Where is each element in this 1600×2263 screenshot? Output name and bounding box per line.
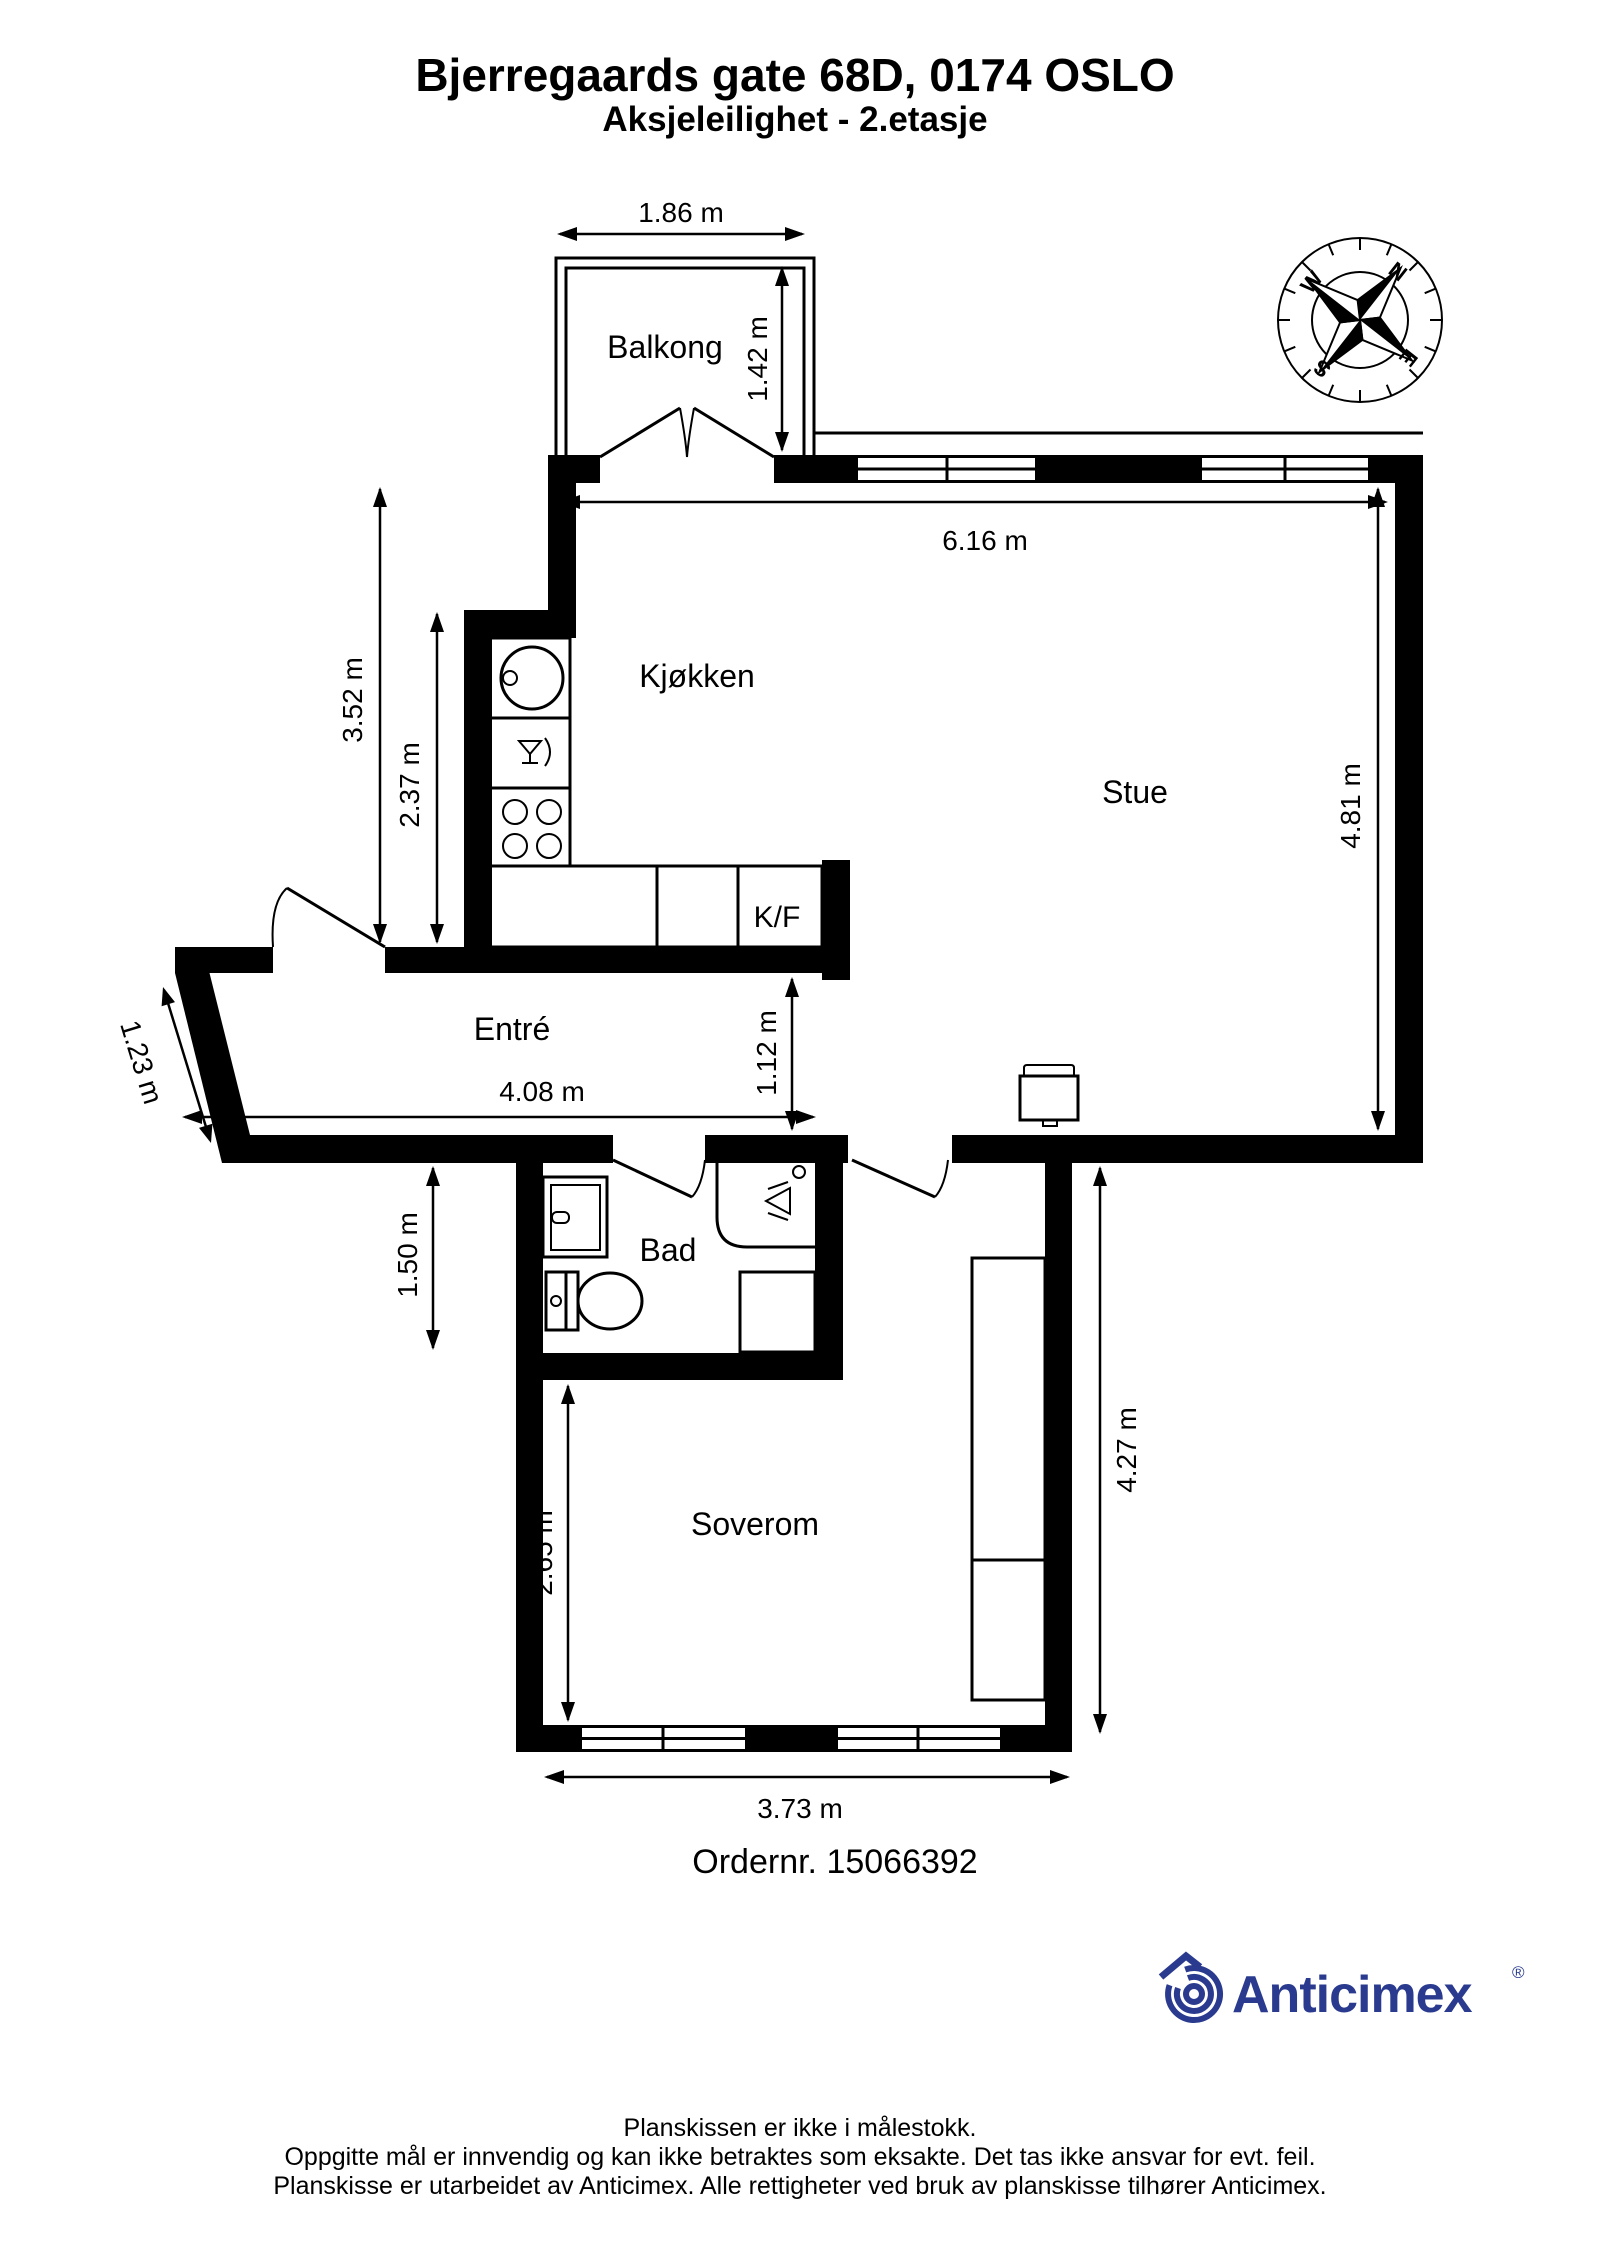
footer-line-3: Planskisse er utarbeidet av Anticimex. A… (273, 2172, 1326, 2200)
dim-label: 2.37 m (394, 742, 425, 828)
dim-right-wing-height: 4.27 m (1093, 1166, 1142, 1734)
header: Bjerregaards gate 68D, 0174 OSLO Aksjele… (415, 49, 1174, 139)
wardrobe (972, 1258, 1045, 1700)
soverom-window-1 (582, 1725, 745, 1752)
footer-disclaimer: Planskissen er ikke i målestokk. Oppgitt… (273, 2114, 1326, 2200)
order-number: Ordernr. 15066392 (692, 1843, 977, 1881)
dimensions: 1.86 m 1.42 m 6.16 m 3.52 m 2.37 m (114, 197, 1388, 1824)
soverom-door (852, 1160, 948, 1197)
dim-label: 4.08 m (499, 1076, 585, 1107)
floorplan-drawing: Bjerregaards gate 68D, 0174 OSLO Aksjele… (0, 0, 1600, 2263)
stue-right-wall (1395, 455, 1423, 1163)
stue-bottom-wall (952, 1135, 1423, 1163)
dim-bad-height: 1.50 m (392, 1166, 440, 1350)
dim-label: 3.52 m (337, 657, 368, 743)
room-label-stue: Stue (1102, 774, 1168, 810)
kitchen-left-wall (464, 610, 492, 973)
soverom-right-wall (1045, 1135, 1072, 1752)
bad-door (613, 1160, 705, 1197)
dim-passage: 1.12 m (751, 977, 799, 1131)
dim-label: 4.81 m (1335, 763, 1366, 849)
kf-stub-wall (822, 860, 850, 980)
page-title: Bjerregaards gate 68D, 0174 OSLO (415, 49, 1174, 101)
footer-line-1: Planskissen er ikke i målestokk. (624, 2114, 977, 2142)
balcony-door (600, 408, 774, 457)
anticimex-logo-icon (1161, 1956, 1220, 2020)
dim-entre-width: 4.08 m (182, 1076, 816, 1124)
dim-label: 1.23 m (114, 1017, 169, 1108)
windows (582, 455, 1368, 1752)
dim-label: 1.50 m (392, 1212, 423, 1298)
dim-kitchen-inner: 2.37 m (394, 612, 444, 944)
counter-cabinet (657, 866, 738, 947)
washing-machine (740, 1272, 815, 1352)
dim-label: 2.65 m (527, 1510, 558, 1596)
dishwasher-icon (519, 738, 550, 766)
walls (175, 433, 1423, 1752)
soverom-window-2 (838, 1725, 1000, 1752)
page-subtitle: Aksjeleilighet - 2.etasje (602, 100, 987, 139)
stue-window-1 (858, 455, 1035, 483)
vanity-sink (543, 1177, 607, 1257)
dim-stue-height: 4.81 m (1335, 487, 1385, 1131)
footer-line-2: Oppgitte mål er innvendig og kan ikke be… (284, 2143, 1315, 2171)
dim-balcony-width: 1.86 m (557, 197, 805, 241)
floorplan-page: Bjerregaards gate 68D, 0174 OSLO Aksjele… (0, 0, 1600, 2263)
registered-mark: ® (1512, 1963, 1525, 1982)
dim-label: 4.27 m (1111, 1407, 1142, 1493)
entrance-diagonal-wall (175, 947, 250, 1163)
room-label-bad: Bad (640, 1232, 697, 1268)
dim-balcony-depth: 1.42 m (742, 266, 789, 452)
room-label-entre: Entré (474, 1011, 550, 1047)
counter-cabinet (490, 866, 657, 947)
bad-right-wall (815, 1163, 843, 1380)
compass-rose-icon: N E S W (1278, 238, 1442, 402)
toilet-icon (546, 1272, 642, 1330)
dim-label: 3.73 m (757, 1793, 843, 1824)
dim-label: 1.86 m (638, 197, 724, 228)
faucet-icon (503, 671, 517, 685)
room-label-soverom: Soverom (691, 1506, 819, 1542)
room-label-kf: K/F (754, 901, 801, 934)
dim-kitchen-outer: 3.52 m (337, 487, 387, 944)
bad-bottom-wall (516, 1353, 843, 1380)
dim-soverom-width: 3.73 m (544, 1770, 1070, 1824)
armchair-icon (1020, 1065, 1078, 1126)
dim-stue-width: 6.16 m (560, 495, 1388, 556)
anticimex-logo: Anticimex ® (1161, 1956, 1525, 2024)
anticimex-logo-text: Anticimex (1232, 1966, 1473, 2024)
dim-label: 6.16 m (942, 525, 1028, 556)
stue-window-2 (1202, 455, 1368, 483)
dim-label: 1.12 m (751, 1010, 782, 1096)
entrance-door (273, 888, 385, 947)
dim-label: 1.42 m (742, 316, 773, 402)
room-label-kjokken: Kjøkken (639, 658, 755, 694)
room-label-balkong: Balkong (607, 329, 723, 365)
sink-icon (501, 647, 563, 709)
left-wall (516, 1163, 543, 1752)
shower-corner (717, 1163, 815, 1247)
stove-burners-icon (503, 800, 561, 858)
